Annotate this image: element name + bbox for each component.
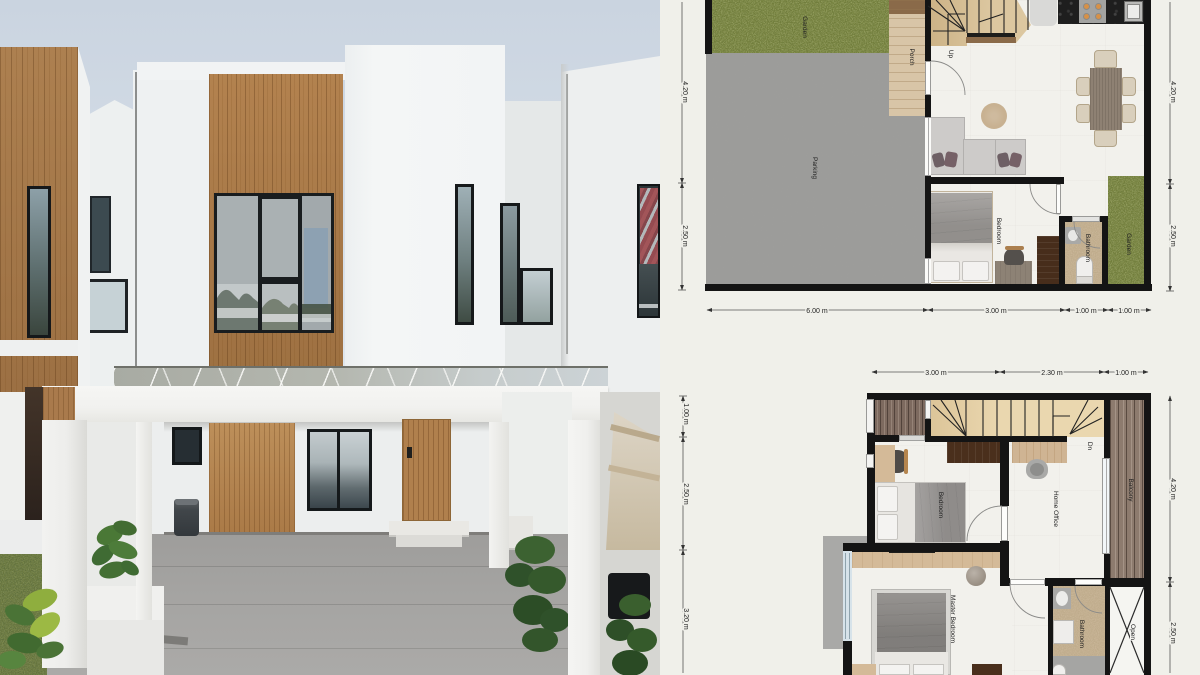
svg-text:Bedroom: Bedroom — [995, 218, 1002, 244]
svg-text:2.50 m: 2.50 m — [1169, 225, 1176, 247]
svg-text:2.50 m: 2.50 m — [1169, 622, 1176, 644]
svg-text:Bathroom: Bathroom — [1078, 620, 1085, 648]
svg-text:Up: Up — [947, 50, 954, 59]
svg-text:4.20 m: 4.20 m — [681, 81, 688, 103]
svg-text:2.50 m: 2.50 m — [682, 483, 689, 505]
svg-text:3.20 m: 3.20 m — [682, 608, 689, 630]
svg-text:3.00 m: 3.00 m — [925, 370, 947, 377]
svg-text:Garden: Garden — [1125, 233, 1132, 255]
svg-text:Bathroom: Bathroom — [1084, 234, 1091, 262]
svg-text:Master Bedroom: Master Bedroom — [949, 595, 956, 643]
svg-text:1.00 m: 1.00 m — [682, 403, 689, 425]
svg-text:Home Office: Home Office — [1052, 491, 1059, 527]
svg-text:1.00 m: 1.00 m — [1115, 370, 1137, 377]
svg-text:4.20 m: 4.20 m — [1169, 478, 1176, 500]
svg-text:Balcony: Balcony — [1127, 478, 1134, 502]
svg-text:2.50 m: 2.50 m — [681, 225, 688, 247]
svg-text:1.00 m: 1.00 m — [1118, 308, 1140, 315]
svg-text:Parking: Parking — [811, 157, 818, 179]
svg-text:3.00 m: 3.00 m — [985, 308, 1007, 315]
svg-text:Garden: Garden — [801, 16, 808, 38]
svg-text:Porch: Porch — [908, 49, 915, 66]
svg-text:6.00 m: 6.00 m — [806, 308, 828, 315]
svg-text:1.00 m: 1.00 m — [1075, 308, 1097, 315]
svg-text:4.20 m: 4.20 m — [1169, 81, 1176, 103]
svg-text:2.30 m: 2.30 m — [1041, 370, 1063, 377]
svg-text:Bedroom: Bedroom — [937, 492, 944, 518]
svg-text:Open: Open — [1129, 624, 1136, 640]
svg-text:Dn: Dn — [1086, 442, 1093, 451]
